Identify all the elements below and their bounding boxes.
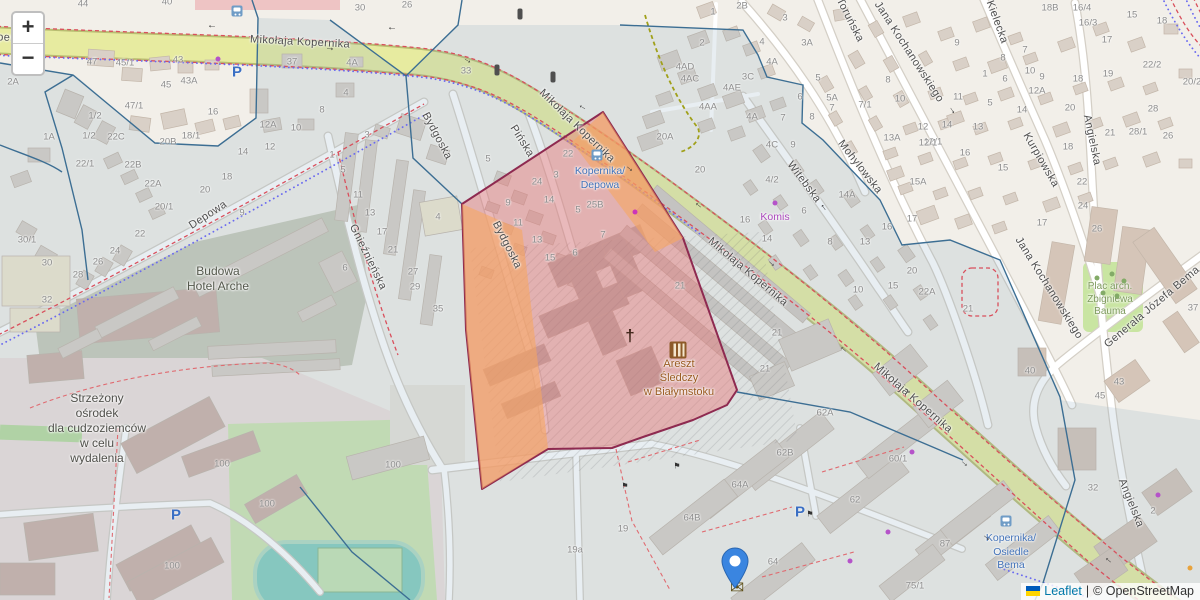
building — [1164, 24, 1178, 34]
attribution-separator: | — [1086, 584, 1089, 598]
building — [149, 56, 170, 71]
openstreetmap-link[interactable]: © OpenStreetMap — [1093, 584, 1194, 598]
zoom-control: + − — [11, 11, 45, 76]
building — [205, 60, 219, 70]
attribution-bar: Leaflet | © OpenStreetMap — [1021, 583, 1200, 600]
map-canvas — [0, 0, 1200, 600]
map[interactable]: Mikołaja KopernikaMikołaja KopernikaMiko… — [0, 0, 1200, 600]
zoom-in-button[interactable]: + — [13, 13, 43, 44]
leaflet-link[interactable]: Leaflet — [1044, 584, 1082, 598]
ukraine-flag-icon — [1026, 586, 1040, 596]
zoom-out-button[interactable]: − — [13, 44, 43, 74]
building — [1179, 159, 1192, 168]
building — [833, 8, 850, 21]
building — [1179, 69, 1192, 78]
building — [122, 67, 143, 81]
building — [178, 62, 193, 73]
